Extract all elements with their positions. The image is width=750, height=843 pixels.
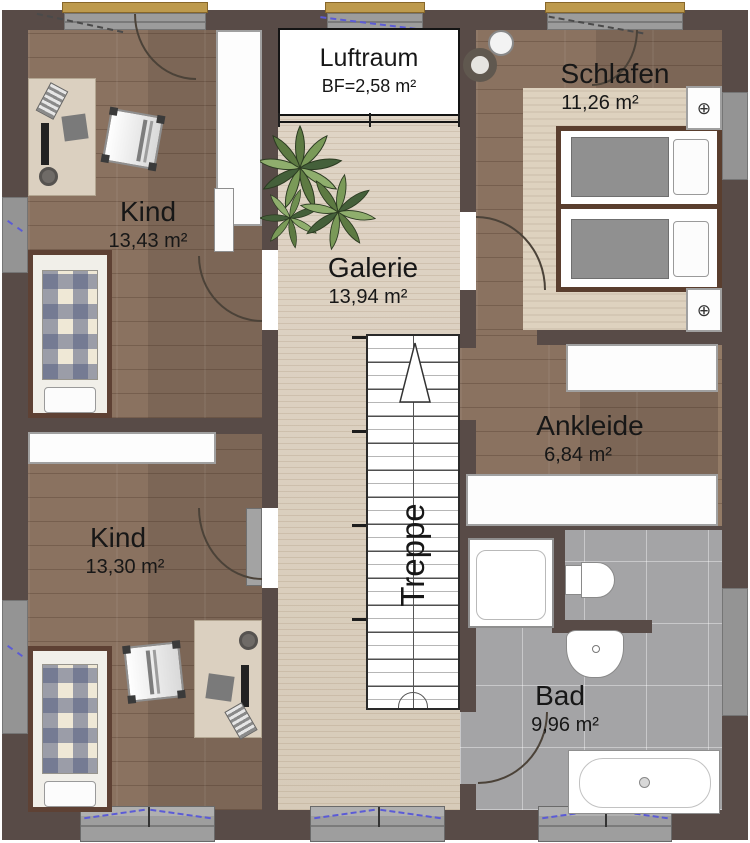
dormer-window [310, 806, 445, 842]
stool [239, 631, 258, 650]
chair-arm [122, 645, 131, 654]
keyboard [224, 702, 257, 740]
window-left-upper [2, 197, 28, 273]
bathtub [568, 750, 720, 814]
stairs-tick [352, 618, 366, 621]
plant [260, 124, 376, 258]
desk [194, 620, 262, 738]
shower [468, 538, 554, 628]
room-label-kind-top: Kind [78, 196, 218, 228]
keyboard [36, 82, 69, 120]
stairs-handrail-arc [398, 692, 428, 710]
wall-segment [262, 330, 278, 508]
wall-segment [460, 290, 476, 348]
bed-duvet-plaid [42, 664, 98, 774]
bed-duvet [571, 219, 669, 279]
room-label-galerie: Galerie [298, 252, 448, 284]
chair-arm [127, 695, 136, 704]
wardrobe [28, 432, 216, 464]
knob-icon: ⊕ [697, 99, 711, 118]
shower-tray [476, 550, 546, 620]
nightstand: ⊕ [686, 86, 722, 130]
room-label-kind-bottom: Kind [48, 522, 188, 554]
bed [28, 250, 112, 418]
monitor [41, 123, 49, 165]
toilet [565, 562, 615, 598]
beam-tick [458, 113, 460, 127]
chair-arm [101, 154, 110, 163]
desk [28, 78, 96, 196]
chair-arm [148, 162, 157, 171]
room-label-bad: Bad [505, 680, 615, 712]
bed-duvet [571, 137, 669, 197]
chair-arm [109, 107, 118, 116]
stairs-tick [352, 524, 366, 527]
stairs-label: Treppe [394, 504, 432, 607]
window-frame [62, 2, 208, 13]
desk-pad [205, 673, 234, 701]
stairs-treppe: Treppe [366, 334, 460, 710]
wall-schlafen-ankleide [537, 330, 722, 345]
bed [28, 646, 112, 812]
bed-pillow [44, 781, 96, 807]
stairs-tick [352, 430, 366, 433]
window-glass-line [548, 21, 682, 23]
desk-pad [61, 113, 88, 141]
basin-drain [592, 645, 600, 653]
wall-segment [262, 588, 278, 810]
room-area-galerie: 13,94 m² [293, 286, 443, 309]
wardrobe [466, 474, 718, 526]
wall-segment [460, 784, 476, 810]
room-area-kind-bottom: 13,30 m² [48, 556, 202, 579]
toilet-bowl [581, 562, 615, 598]
nightstand: ⊕ [686, 288, 722, 332]
room-area-ankleide: 6,84 m² [505, 444, 651, 467]
chair-arm [172, 640, 181, 649]
chair-arm [156, 115, 165, 124]
room-area-schlafen: 11,26 m² [520, 92, 680, 115]
room-label-ankleide: Ankleide [505, 410, 675, 442]
bed-pillow [44, 387, 96, 413]
room-area-kind-top: 13,43 m² [78, 230, 218, 253]
monitor [241, 665, 249, 707]
floor-plan: Treppe [0, 0, 750, 843]
double-bed [556, 126, 722, 292]
wall-thin-partition [565, 526, 722, 530]
stool-round [488, 30, 514, 56]
desk-chair [102, 108, 165, 171]
window-frame [545, 2, 685, 13]
window-left-lower [2, 600, 28, 734]
desk-chair [123, 641, 185, 703]
bed-duvet-plaid [42, 270, 98, 380]
room-area-luftraum: BF=2,58 m² [288, 76, 450, 97]
window-right-upper [722, 92, 748, 180]
room-label-luftraum: Luftraum [288, 44, 450, 73]
window-frame [325, 2, 425, 13]
bed-pillow [673, 139, 709, 195]
stairs-tick [352, 336, 366, 339]
luftraum-beam [278, 114, 460, 123]
stairs-up-arrow-icon [395, 340, 435, 406]
bed-divider [561, 204, 717, 209]
room-area-bad: 9,96 m² [500, 714, 630, 737]
chair-arm [177, 690, 186, 699]
tub-drain [639, 777, 650, 788]
wardrobe [566, 344, 718, 392]
room-label-schlafen: Schlafen [525, 58, 705, 90]
chair-backrest-line [153, 650, 161, 694]
window-right-lower [722, 588, 748, 716]
knob-icon: ⊕ [697, 301, 711, 320]
stool [39, 167, 58, 186]
bed-pillow [673, 221, 709, 277]
